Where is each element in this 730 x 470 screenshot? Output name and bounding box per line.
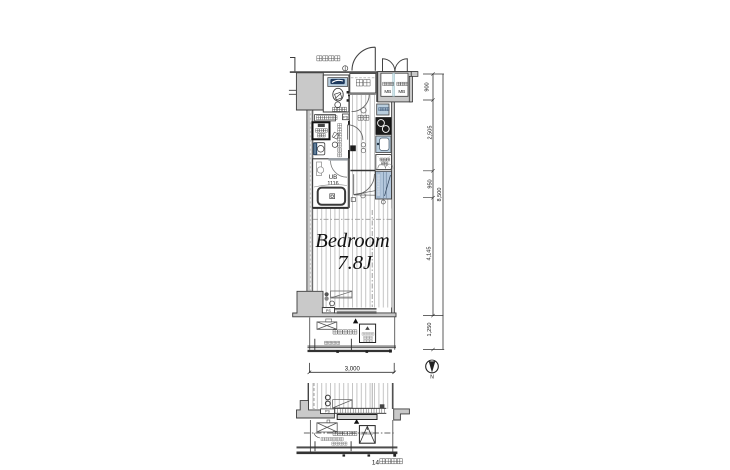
svg-text:3,000: 3,000 [345,367,361,373]
svg-text:14: 14 [372,459,380,466]
svg-text:1116: 1116 [327,181,338,187]
svg-text:4,145: 4,145 [427,247,433,261]
svg-text:1,250: 1,250 [427,323,433,337]
svg-text:Bedroom: Bedroom [315,230,389,252]
svg-text:MB: MB [384,89,391,94]
svg-text:PS: PS [343,115,349,119]
svg-text:PS: PS [325,410,330,414]
svg-text:2,505: 2,505 [428,126,434,140]
svg-text:N: N [430,375,434,381]
svg-text:7.8J: 7.8J [337,252,373,274]
svg-text:950: 950 [428,179,434,188]
svg-text:8,500: 8,500 [437,188,443,202]
svg-text:MB: MB [398,89,405,94]
svg-text:PS: PS [326,309,332,313]
svg-text:900: 900 [424,82,430,91]
